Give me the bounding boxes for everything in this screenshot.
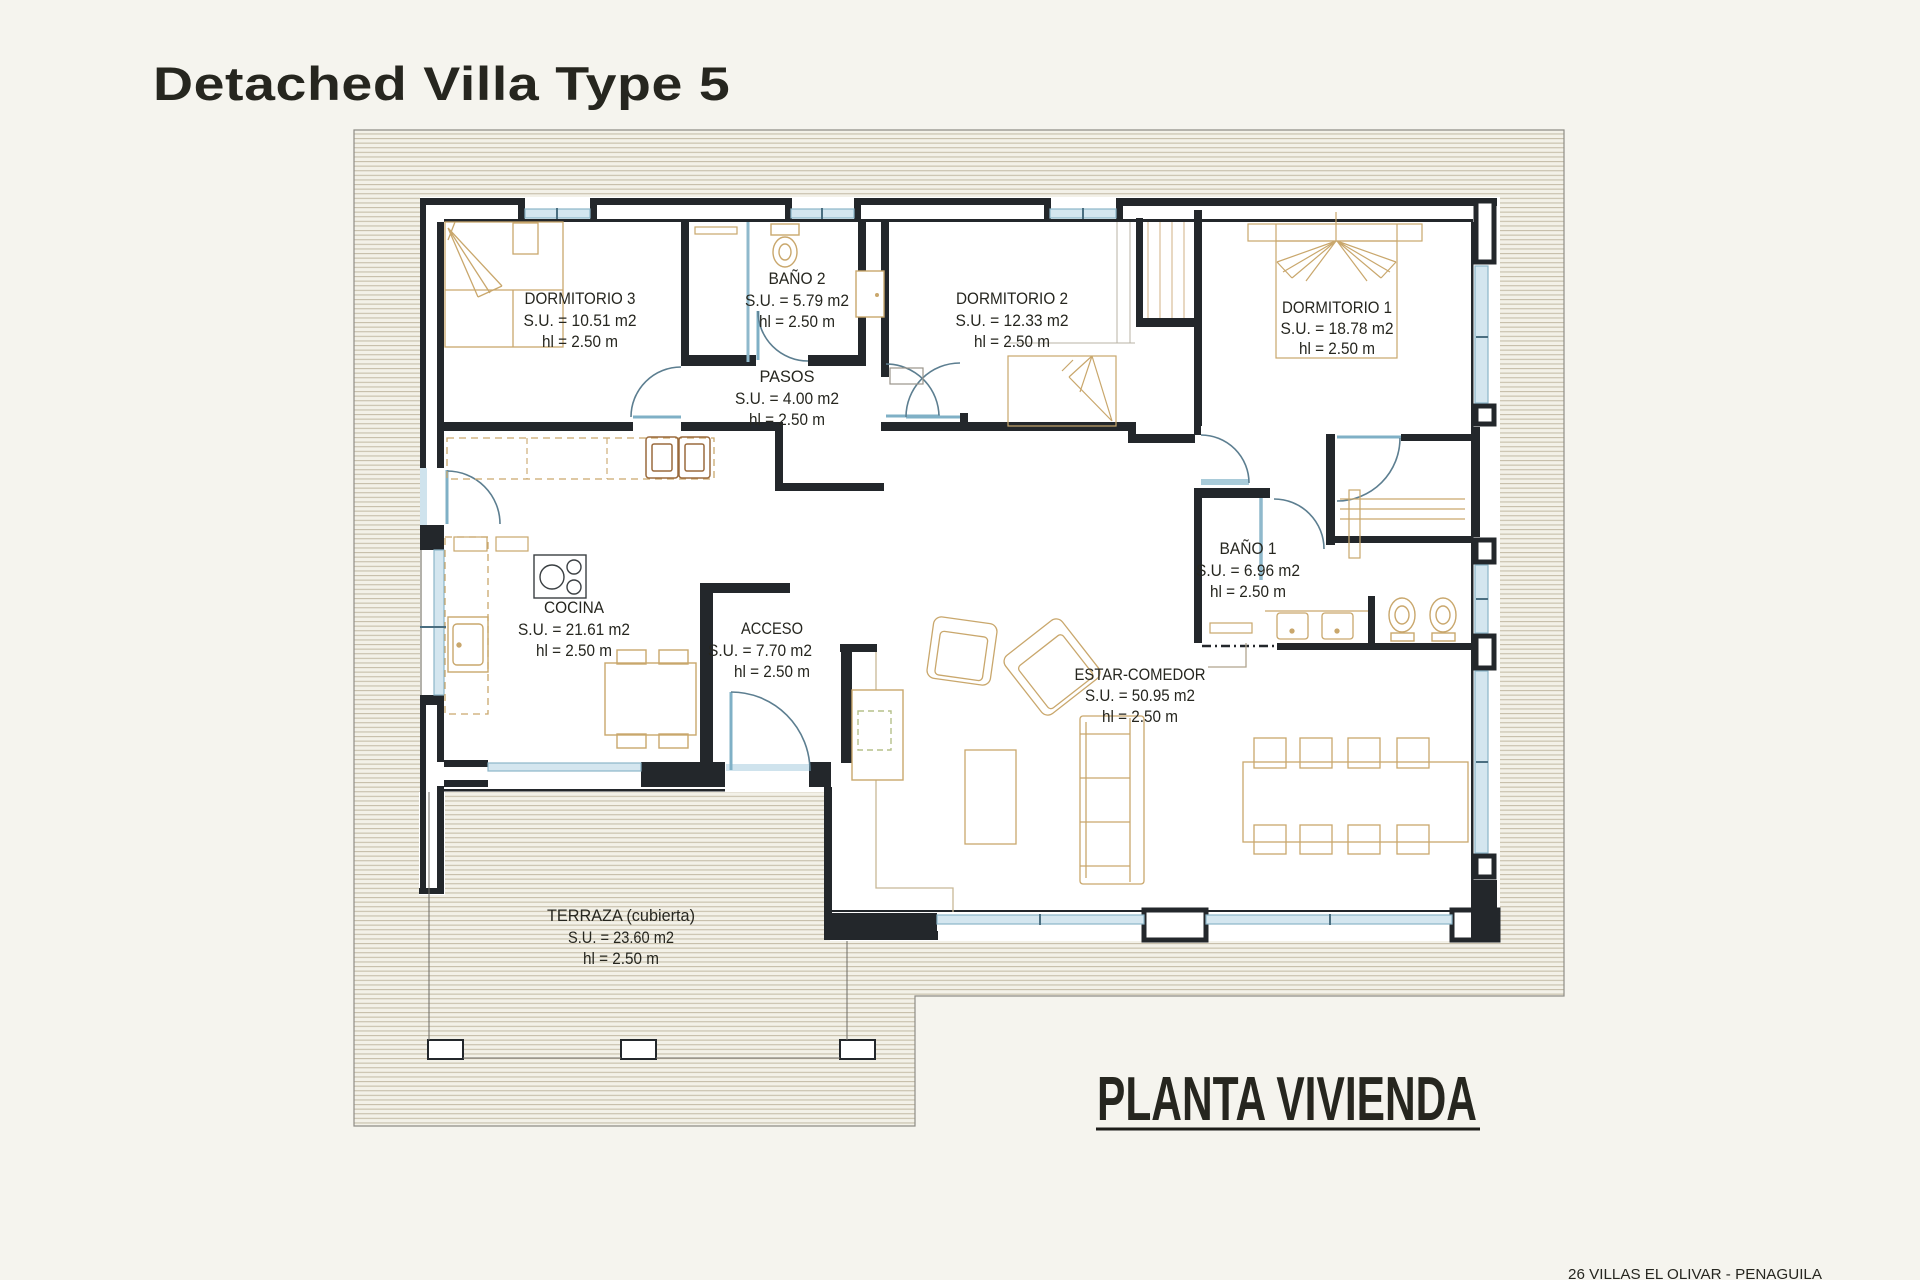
svg-text:26 VILLAS EL OLIVAR - PENAGUIL: 26 VILLAS EL OLIVAR - PENAGUILA <box>1568 1266 1822 1280</box>
svg-text:hl = 2.50 m: hl = 2.50 m <box>734 662 810 681</box>
svg-text:hl = 2.50 m: hl = 2.50 m <box>974 332 1050 351</box>
svg-text:hl = 2.50 m: hl = 2.50 m <box>1210 582 1286 601</box>
svg-text:DORMITORIO 1: DORMITORIO 1 <box>1282 298 1392 317</box>
svg-text:ESTAR-COMEDOR: ESTAR-COMEDOR <box>1075 665 1206 684</box>
svg-text:hl = 2.50 m: hl = 2.50 m <box>536 641 612 660</box>
svg-text:PASOS: PASOS <box>760 367 815 386</box>
svg-text:S.U. = 10.51 m2: S.U. = 10.51 m2 <box>524 311 637 330</box>
svg-text:S.U. = 12.33 m2: S.U. = 12.33 m2 <box>956 311 1069 330</box>
svg-text:hl = 2.50 m: hl = 2.50 m <box>1102 707 1178 726</box>
svg-text:S.U. = 4.00 m2: S.U. = 4.00 m2 <box>735 389 839 408</box>
svg-text:hl = 2.50 m: hl = 2.50 m <box>1299 339 1375 358</box>
svg-text:DORMITORIO 2: DORMITORIO 2 <box>956 289 1068 308</box>
svg-text:DORMITORIO 3: DORMITORIO 3 <box>525 289 636 308</box>
svg-text:hl = 2.50 m: hl = 2.50 m <box>759 312 835 331</box>
svg-text:PLANTA VIVIENDA: PLANTA VIVIENDA <box>1097 1065 1477 1134</box>
svg-text:S.U. = 23.60 m2: S.U. = 23.60 m2 <box>568 928 674 947</box>
svg-text:TERRAZA (cubierta): TERRAZA (cubierta) <box>547 906 695 925</box>
svg-text:hl = 2.50 m: hl = 2.50 m <box>542 332 618 351</box>
svg-text:S.U. = 50.95 m2: S.U. = 50.95 m2 <box>1085 686 1195 705</box>
svg-text:S.U. = 6.96 m2: S.U. = 6.96 m2 <box>1196 561 1300 580</box>
svg-text:ACCESO: ACCESO <box>741 619 803 638</box>
svg-text:S.U. = 7.70 m2: S.U. = 7.70 m2 <box>708 641 812 660</box>
svg-text:S.U. = 18.78 m2: S.U. = 18.78 m2 <box>1281 319 1394 338</box>
svg-text:hl = 2.50 m: hl = 2.50 m <box>749 410 825 429</box>
svg-text:COCINA: COCINA <box>544 598 605 617</box>
svg-text:S.U. = 21.61 m2: S.U. = 21.61 m2 <box>518 620 630 639</box>
svg-text:S.U. = 5.79 m2: S.U. = 5.79 m2 <box>745 291 849 310</box>
svg-text:BAÑO 1: BAÑO 1 <box>1220 539 1277 558</box>
svg-text:BAÑO 2: BAÑO 2 <box>769 269 826 288</box>
svg-text:hl = 2.50 m: hl = 2.50 m <box>583 949 659 968</box>
svg-text:Detached Villa Type 5: Detached Villa Type 5 <box>153 57 730 110</box>
